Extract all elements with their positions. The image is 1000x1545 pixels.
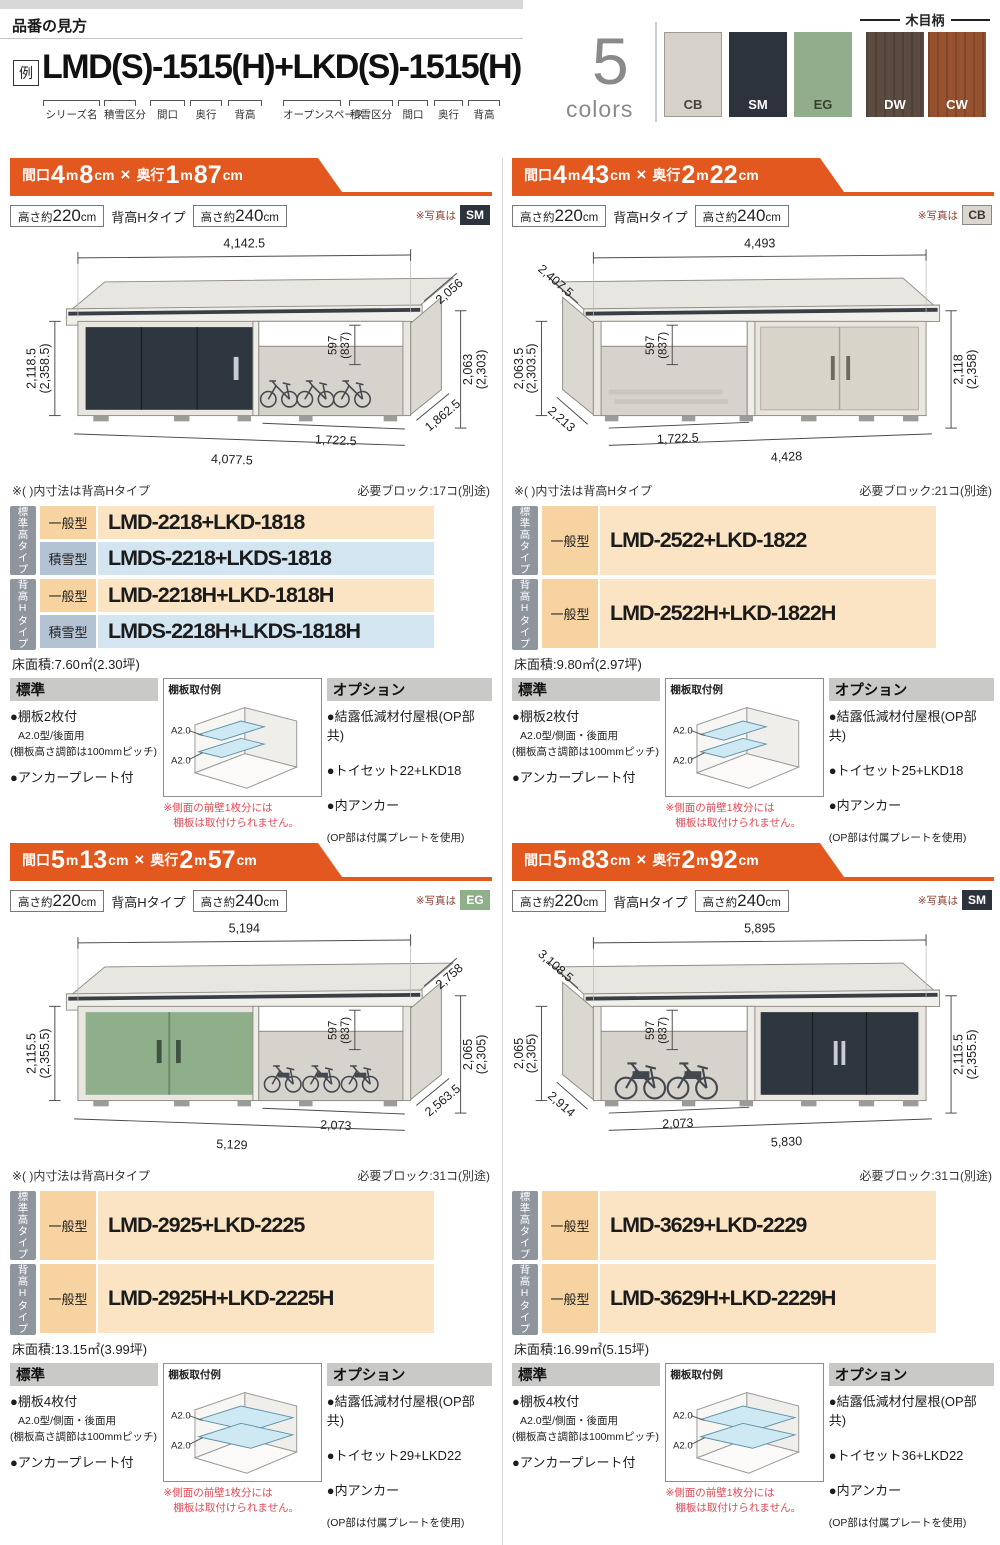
photo-color-note: ※写真はCB: [918, 205, 992, 225]
shelf-label: A2.0: [673, 1410, 693, 1421]
shelf-example-box: 棚板取付例 A2.0 A2.0: [163, 678, 321, 797]
inner-dim-note: ※( )内寸法は背高Hタイプ: [12, 1167, 150, 1185]
height-240-box: 高さ約240cm: [695, 890, 789, 912]
photo-color-note: ※写真はEG: [416, 890, 490, 910]
options-column: オプション ●結露低減材付屋根(OP部共) ●トイセット25+LKD18 ●内ア…: [829, 678, 994, 846]
dim-open-width: 1,722.5: [315, 433, 357, 449]
standard-column: 標準 ●棚板4枚付 A2.0型/側面・後面用 (棚板高さ調節は100mmピッチ)…: [512, 1363, 660, 1531]
shelf-warning: 棚板は取付けられません。: [163, 1500, 321, 1515]
dim-right-height: 2,063: [461, 354, 475, 385]
color-swatch-cw: CW: [928, 32, 986, 117]
shelf-warning: ※側面の前壁1枚分には: [163, 800, 321, 815]
floor-area: 床面積:16.99㎡(5.15坪): [514, 1339, 994, 1359]
height-row: 高さ約220cm 背高Hタイプ 高さ約240cm ※写真はCB: [512, 204, 994, 228]
top-gray-bar: [0, 0, 523, 9]
code-part-label: 背高: [468, 100, 500, 122]
shelf-label: A2.0: [673, 1440, 693, 1451]
height-220-box: 高さ約220cm: [10, 205, 104, 227]
size-banner: 間口4m8cm × 奥行1m87cm: [10, 158, 492, 196]
table-row: 一般型LMD-3629H+LKD-2229H: [542, 1264, 994, 1333]
table-row: 一般型LMD-2522H+LKD-1822H: [542, 579, 994, 648]
shelf-warning: ※側面の前壁1枚分には: [665, 1485, 823, 1500]
standard-column: 標準 ●棚板2枚付 A2.0型/側面・後面用 (棚板高さ調節は100mmピッチ)…: [512, 678, 660, 846]
shelf-warning: ※側面の前壁1枚分には: [163, 1485, 321, 1500]
shelf-example-column: 棚板取付例 A2.0 A2.0 ※側面の前壁1枚分には 棚板は取付けられません。: [163, 678, 321, 846]
shed-diagram: 4,493 2,407.5 2,063.5 (2,303.5) 597 (837…: [512, 230, 994, 480]
column-divider: [502, 158, 503, 1545]
dim-left-height-h: (2,358.5): [38, 343, 52, 393]
dim-open-width: 1,722.5: [657, 431, 699, 447]
color-swatch-sm: SM: [729, 32, 787, 117]
options-column: オプション ●結露低減材付屋根(OP部共) ●トイセット36+LKD22 ●内ア…: [829, 1363, 994, 1531]
shelf-label: A2.0: [171, 1440, 191, 1451]
product-section-3: 間口5m13cm × 奥行2m57cm 高さ約220cm 背高Hタイプ 高さ約2…: [10, 843, 492, 1531]
dim-bottom-depth: 2,914: [545, 1089, 578, 1120]
height-240-box: 高さ約240cm: [193, 205, 287, 227]
title-divider: [0, 38, 523, 39]
color-swatch-eg: EG: [794, 32, 852, 117]
table-group: 標準高タイプ 一般型LMD-3629+LKD-2229: [512, 1191, 994, 1260]
dim-bottom-width: 4,428: [771, 449, 803, 464]
shed-diagram: 4,142.5 2,056 2,118.5 (2,358.5) 597 (837…: [10, 230, 492, 480]
dim-right-height-h: (2,355.5): [965, 1029, 979, 1079]
standard-column: 標準 ●棚板2枚付 A2.0型/後面用 (棚板高さ調節は100mmピッチ) ●ア…: [10, 678, 158, 846]
product-section-2: 間口4m43cm × 奥行2m22cm 高さ約220cm 背高Hタイプ 高さ約2…: [512, 158, 994, 846]
shelf-example-box: 棚板取付例 A2.0 A2.0: [665, 1363, 823, 1482]
colors-word: colors: [566, 96, 633, 123]
table-group: 背高Hタイプ 一般型LMD-3629H+LKD-2229H: [512, 1264, 994, 1335]
table-group: 背高Hタイプ 一般型LMD-2218H+LKD-1818H 積雪型LMDS-22…: [10, 579, 492, 650]
blocks-note: 必要ブロック:31コ(別途): [357, 1167, 490, 1185]
code-part-label: 積雪区分: [349, 100, 393, 122]
shelf-diagram: A2.0 A2.0: [168, 1383, 316, 1479]
table-group: 背高Hタイプ 一般型LMD-2925H+LKD-2225H: [10, 1264, 492, 1335]
dim-right-height-h: (2,303): [475, 350, 489, 390]
shelf-example-box: 棚板取付例 A2.0 A2.0: [665, 678, 823, 797]
shelf-label: A2.0: [171, 755, 191, 766]
color-swatch-cb: CB: [664, 32, 722, 117]
shed-doors: [86, 327, 253, 410]
code-part-label: 積雪区分: [104, 100, 136, 122]
dim-top-depth: 2,407.5: [535, 262, 576, 300]
shelf-example-column: 棚板取付例 A2.0 A2.0 ※側面の前壁1枚分には 棚板は取付けられません。: [665, 678, 823, 846]
dim-opening-height-h: (837): [340, 1017, 352, 1044]
code-part-label: オープンスペース: [283, 100, 341, 122]
shelf-warning: 棚板は取付けられません。: [665, 815, 823, 830]
table-row: 一般型LMD-2218H+LKD-1818H: [40, 579, 492, 612]
shed-illustration: [66, 963, 453, 1106]
dim-right-height: 2,118: [952, 354, 966, 384]
shelf-diagram: A2.0 A2.0: [670, 1383, 818, 1479]
floor-area: 床面積:9.80㎡(2.97坪): [514, 654, 994, 674]
dim-right-height-h: (2,358): [965, 350, 979, 390]
model-table: 標準高タイプ 一般型LMD-2522+LKD-1822 背高Hタイプ 一般型LM…: [512, 506, 994, 650]
dim-bottom-width: 5,830: [771, 1134, 803, 1149]
blocks-note: 必要ブロック:17コ(別途): [357, 482, 490, 500]
dim-top-width: 5,194: [229, 921, 260, 935]
shelf-label: A2.0: [673, 755, 693, 766]
dim-opening-height-h: (837): [657, 332, 669, 359]
color-count: 5: [592, 28, 629, 94]
dim-opening-height: 597: [645, 336, 657, 355]
code-part-label: 間口: [398, 100, 428, 122]
shelf-example-box: 棚板取付例 A2.0 A2.0: [163, 1363, 321, 1482]
product-section-1: 間口4m8cm × 奥行1m87cm 高さ約220cm 背高Hタイプ 高さ約24…: [10, 158, 492, 846]
shelf-label: A2.0: [673, 725, 693, 736]
diagram-notes: ※( )内寸法は背高Hタイプ 必要ブロック:21コ(別途): [514, 482, 992, 500]
shed-diagram: 5,194 2,758 2,115.5 (2,355.5) 597 (837) …: [10, 915, 492, 1165]
shed-illustration: [66, 278, 453, 421]
dim-bottom-width: 4,077.5: [211, 452, 253, 468]
table-row: 一般型LMD-2218+LKD-1818: [40, 506, 492, 539]
dim-left-height-h: (2,305): [525, 1034, 539, 1074]
dim-left-height-h: (2,355.5): [38, 1028, 52, 1078]
shelf-warning: ※側面の前壁1枚分には: [665, 800, 823, 815]
dim-top-width: 5,895: [744, 921, 775, 935]
h-type-label: 背高Hタイプ: [613, 207, 687, 226]
table-row: 積雪型LMDS-2218H+LKDS-1818H: [40, 615, 492, 648]
color-swatch-dw: DW: [866, 32, 924, 117]
shelf-warning: 棚板は取付けられません。: [665, 1500, 823, 1515]
h-type-label: 背高Hタイプ: [111, 892, 185, 911]
photo-color-note: ※写真はSM: [416, 205, 490, 225]
dim-left-height: 2,115.5: [25, 1033, 39, 1074]
height-220-box: 高さ約220cm: [512, 205, 606, 227]
dim-opening-height-h: (837): [657, 1017, 669, 1044]
dim-open-width: 2,073: [320, 1118, 352, 1133]
code-part-label: 背高: [228, 100, 262, 122]
example-model-code: LMD(S)-1515(H)+LKD(S)-1515(H): [42, 48, 521, 87]
dim-left-height: 2,118.5: [25, 348, 39, 389]
code-part-label: 奥行: [190, 100, 222, 122]
header-divider: [655, 22, 657, 122]
height-240-box: 高さ約240cm: [695, 205, 789, 227]
blocks-note: 必要ブロック:31コ(別途): [859, 1167, 992, 1185]
dim-top-width: 4,142.5: [223, 236, 265, 250]
wood-grain-label: 木目柄: [860, 10, 990, 29]
shelf-warning: 棚板は取付けられません。: [163, 815, 321, 830]
dim-opening-height: 597: [328, 336, 340, 355]
shelf-example-column: 棚板取付例 A2.0 A2.0 ※側面の前壁1枚分には 棚板は取付けられません。: [163, 1363, 321, 1531]
code-part-label: シリーズ名: [43, 100, 100, 122]
dim-top-width: 4,493: [744, 236, 775, 250]
table-row: 一般型LMD-2522+LKD-1822: [542, 506, 994, 575]
height-row: 高さ約220cm 背高Hタイプ 高さ約240cm ※写真はSM: [10, 204, 492, 228]
height-240-box: 高さ約240cm: [193, 890, 287, 912]
dim-open-width: 2,073: [662, 1116, 694, 1131]
height-row: 高さ約220cm 背高Hタイプ 高さ約240cm ※写真はSM: [512, 889, 994, 913]
shed-doors: [761, 1012, 919, 1095]
height-row: 高さ約220cm 背高Hタイプ 高さ約240cm ※写真はEG: [10, 889, 492, 913]
inner-dim-note: ※( )内寸法は背高Hタイプ: [12, 482, 150, 500]
code-part-label: 間口: [150, 100, 185, 122]
shed-diagram: 5,895 3,108.5 2,065 (2,305) 597 (837) 2,…: [512, 915, 994, 1165]
dim-right-height-h: (2,305): [475, 1035, 489, 1075]
product-section-4: 間口5m83cm × 奥行2m92cm 高さ約220cm 背高Hタイプ 高さ約2…: [512, 843, 994, 1531]
diagram-notes: ※( )内寸法は背高Hタイプ 必要ブロック:31コ(別途): [12, 1167, 490, 1185]
shelf-diagram: A2.0 A2.0: [670, 698, 818, 794]
dim-opening-height-h: (837): [340, 332, 352, 359]
floor-area: 床面積:7.60㎡(2.30坪): [12, 654, 492, 674]
shelf-diagram: A2.0 A2.0: [168, 698, 316, 794]
h-type-label: 背高Hタイプ: [111, 207, 185, 226]
model-table: 標準高タイプ 一般型LMD-2218+LKD-1818 積雪型LMDS-2218…: [10, 506, 492, 650]
dim-bottom-width: 5,129: [216, 1137, 248, 1152]
table-group: 標準高タイプ 一般型LMD-2522+LKD-1822: [512, 506, 994, 575]
table-row: 一般型LMD-2925+LKD-2225: [40, 1191, 492, 1260]
model-table: 標準高タイプ 一般型LMD-3629+LKD-2229 背高Hタイプ 一般型LM…: [512, 1191, 994, 1335]
dim-right-height: 2,065: [461, 1039, 475, 1070]
dim-top-depth: 3,108.5: [535, 947, 576, 985]
code-part-label: 奥行: [434, 100, 463, 122]
h-type-label: 背高Hタイプ: [613, 892, 687, 911]
size-banner: 間口5m83cm × 奥行2m92cm: [512, 843, 994, 881]
options-column: オプション ●結露低減材付屋根(OP部共) ●トイセット22+LKD18 ●内ア…: [327, 678, 492, 846]
size-banner: 間口5m13cm × 奥行2m57cm: [10, 843, 492, 881]
height-220-box: 高さ約220cm: [512, 890, 606, 912]
size-banner: 間口4m43cm × 奥行2m22cm: [512, 158, 994, 196]
blocks-note: 必要ブロック:21コ(別途): [859, 482, 992, 500]
table-group: 背高Hタイプ 一般型LMD-2522H+LKD-1822H: [512, 579, 994, 650]
table-row: 一般型LMD-2925H+LKD-2225H: [40, 1264, 492, 1333]
shelf-label: A2.0: [171, 725, 191, 736]
table-group: 標準高タイプ 一般型LMD-2218+LKD-1818 積雪型LMDS-2218…: [10, 506, 492, 575]
floor-area: 床面積:13.15㎡(3.99坪): [12, 1339, 492, 1359]
standard-column: 標準 ●棚板4枚付 A2.0型/側面・後面用 (棚板高さ調節は100mmピッチ)…: [10, 1363, 158, 1531]
shed-illustration: [553, 963, 940, 1106]
dim-right-height: 2,115.5: [952, 1034, 966, 1075]
diagram-notes: 必要ブロック:31コ(別途): [514, 1167, 992, 1185]
diagram-notes: ※( )内寸法は背高Hタイプ 必要ブロック:17コ(別途): [12, 482, 490, 500]
shed-illustration: [553, 278, 940, 421]
model-table: 標準高タイプ 一般型LMD-2925+LKD-2225 背高Hタイプ 一般型LM…: [10, 1191, 492, 1335]
page-title: 品番の見方: [12, 15, 87, 36]
dim-bottom-depth: 2,213: [545, 404, 578, 435]
dim-left-height-h: (2,303.5): [525, 343, 539, 393]
options-column: オプション ●結露低減材付屋根(OP部共) ●トイセット29+LKD22 ●内ア…: [327, 1363, 492, 1531]
table-row: 積雪型LMDS-2218+LKDS-1818: [40, 542, 492, 575]
photo-color-note: ※写真はSM: [918, 890, 992, 910]
shelf-label: A2.0: [171, 1410, 191, 1421]
inner-dim-note: ※( )内寸法は背高Hタイプ: [514, 482, 652, 500]
height-220-box: 高さ約220cm: [10, 890, 104, 912]
dim-opening-height: 597: [645, 1021, 657, 1040]
shelf-example-column: 棚板取付例 A2.0 A2.0 ※側面の前壁1枚分には 棚板は取付けられません。: [665, 1363, 823, 1531]
example-label-box: 例: [13, 60, 39, 86]
dim-opening-height: 597: [328, 1021, 340, 1040]
table-row: 一般型LMD-3629+LKD-2229: [542, 1191, 994, 1260]
table-group: 標準高タイプ 一般型LMD-2925+LKD-2225: [10, 1191, 492, 1260]
